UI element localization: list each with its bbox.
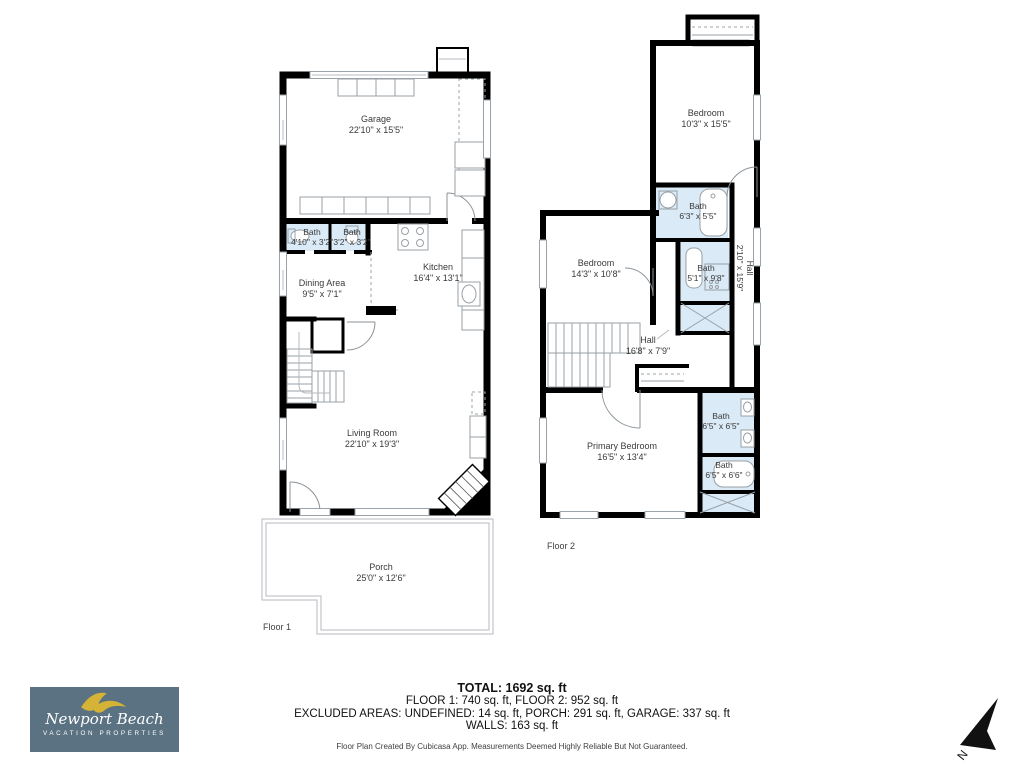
floor-plan-drawing <box>0 0 1024 768</box>
floor1-tag: Floor 1 <box>263 622 291 632</box>
garage-cabinets <box>300 79 485 214</box>
garage-entry-door <box>447 193 475 221</box>
room-label-bath-primary-2: Bath6'5" x 6'6" <box>705 460 742 480</box>
room-label-bath-mid: Bath5'1" x 9'8" <box>687 263 724 283</box>
north-arrow-icon <box>960 698 998 750</box>
room-label-kitchen: Kitchen16'4" x 13'1" <box>413 262 462 284</box>
room-label-garage: Garage22'10" x 15'5" <box>349 114 403 136</box>
room-label-hall-side: Hall2'10" x 15'9" <box>735 245 755 292</box>
room-label-bath-left: Bath4'10" x 3'2" <box>291 227 333 247</box>
primary-door <box>602 390 640 428</box>
entry-stoop <box>437 48 468 74</box>
north-compass: N <box>945 690 1020 765</box>
room-label-porch: Porch25'0" x 12'6" <box>356 562 405 584</box>
garage-door <box>310 72 428 79</box>
floor2-tag: Floor 2 <box>547 541 575 551</box>
room-label-bath-primary-1: Bath6'5" x 6'5" <box>702 411 739 431</box>
north-label: N <box>954 747 970 762</box>
front-door <box>290 482 320 512</box>
logo-subtitle: VACATION PROPERTIES <box>30 730 179 738</box>
bedroom-mid-door <box>625 268 653 296</box>
room-label-hall: Hall16'8" x 7'9" <box>626 335 670 357</box>
kitchen-peninsula-wall <box>366 306 396 315</box>
logo-name: Newport Beach <box>30 711 179 728</box>
room-label-bedroom-top: Bedroom10'3" x 15'5" <box>681 108 730 130</box>
floor-plan-page: Garage22'10" x 15'5" Bath4'10" x 3'2" Ba… <box>0 0 1024 768</box>
room-label-living: Living Room22'10" x 19'3" <box>345 428 399 450</box>
fireplace-icon <box>439 465 490 516</box>
floor1-stairs <box>283 319 375 406</box>
hall-closet <box>637 366 687 390</box>
room-label-dining: Dining Area9'5" x 7'1" <box>299 278 346 300</box>
room-label-bath-top: Bath6'3" x 5'5" <box>679 201 716 221</box>
room-label-bath-right: Bath3'2" x 3'2" <box>333 227 370 247</box>
room-label-primary: Primary Bedroom16'5" x 13'4" <box>587 441 657 463</box>
company-logo: Newport Beach VACATION PROPERTIES <box>30 687 179 752</box>
room-label-bedroom-mid: Bedroom14'3" x 10'8" <box>571 258 620 280</box>
